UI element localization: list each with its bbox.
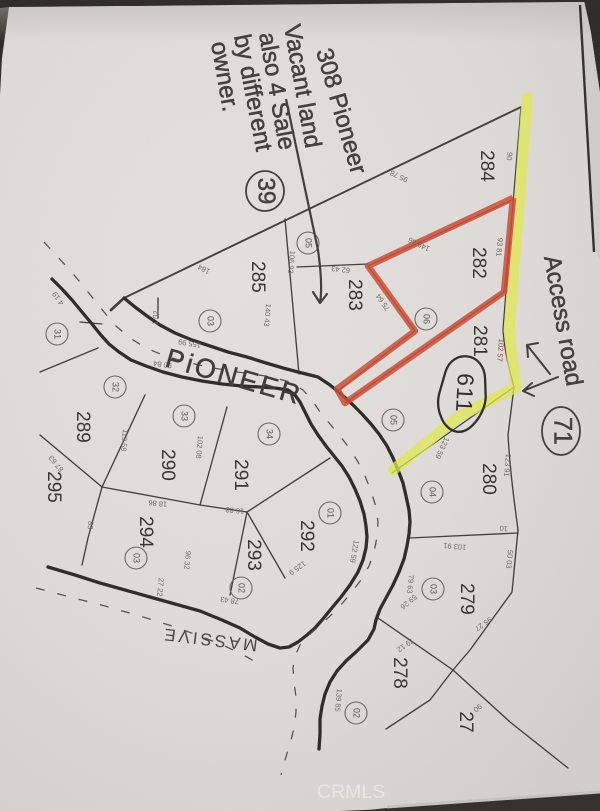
- svg-text:79 63: 79 63: [405, 574, 416, 593]
- svg-text:06: 06: [422, 314, 432, 324]
- svg-text:02: 02: [352, 708, 362, 718]
- svg-text:290: 290: [157, 449, 178, 481]
- svg-text:03: 03: [206, 316, 216, 326]
- svg-text:90: 90: [505, 152, 515, 161]
- svg-text:611: 611: [451, 373, 479, 414]
- svg-text:284: 284: [476, 150, 497, 182]
- svg-text:50 03: 50 03: [504, 549, 515, 568]
- svg-text:295: 295: [43, 471, 64, 503]
- svg-text:71: 71: [548, 417, 576, 445]
- svg-text:27 22: 27 22: [155, 577, 166, 596]
- svg-text:CRMLS: CRMLS: [317, 781, 385, 803]
- svg-text:01: 01: [326, 508, 336, 518]
- svg-text:05: 05: [389, 415, 399, 425]
- svg-text:04: 04: [428, 487, 438, 497]
- svg-text:283: 283: [344, 279, 365, 311]
- svg-text:02: 02: [237, 583, 247, 593]
- svg-text:281: 281: [469, 325, 490, 357]
- svg-text:291: 291: [230, 459, 251, 491]
- svg-text:03: 03: [429, 584, 439, 594]
- svg-text:33: 33: [180, 411, 190, 421]
- svg-text:1 02: 1 02: [150, 310, 160, 325]
- svg-text:34: 34: [265, 429, 275, 439]
- svg-text:32: 32: [111, 382, 121, 392]
- svg-text:280: 280: [478, 463, 499, 495]
- svg-text:27: 27: [455, 711, 476, 732]
- svg-text:285: 285: [247, 261, 268, 293]
- svg-text:292: 292: [296, 520, 317, 552]
- svg-text:18 86: 18 86: [148, 498, 167, 509]
- svg-text:05: 05: [304, 238, 314, 248]
- svg-text:39: 39: [252, 177, 280, 205]
- svg-text:289: 289: [72, 411, 93, 443]
- svg-text:83: 83: [86, 521, 96, 530]
- svg-text:93 81: 93 81: [494, 237, 505, 256]
- svg-text:31: 31: [53, 329, 63, 339]
- svg-text:293: 293: [243, 539, 264, 571]
- svg-text:96 32: 96 32: [182, 550, 193, 569]
- svg-text:282: 282: [468, 247, 489, 279]
- svg-text:294: 294: [135, 516, 156, 548]
- svg-text:278: 278: [389, 657, 410, 689]
- svg-text:279: 279: [456, 583, 477, 615]
- svg-text:16 88: 16 88: [225, 505, 244, 516]
- svg-text:03: 03: [132, 553, 142, 563]
- svg-text:10: 10: [499, 524, 508, 534]
